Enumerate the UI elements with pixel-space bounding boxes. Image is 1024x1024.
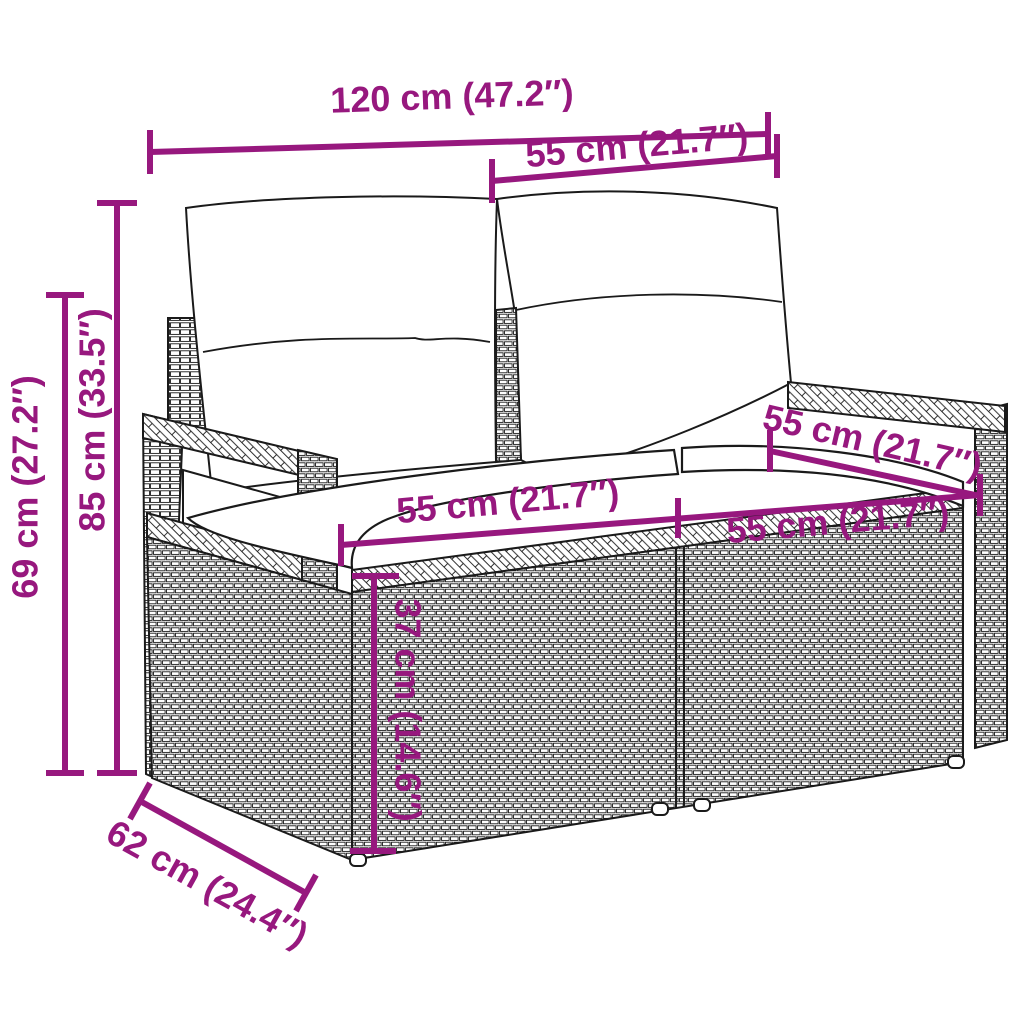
dim-section-width-top: 55 cm (21.7″) — [492, 115, 777, 203]
dim-label-back-height: 85 cm (33.5″) — [72, 308, 113, 531]
sofa-foot — [694, 799, 710, 811]
dimension-diagram-svg: 120 cm (47.2″) 55 cm (21.7″) 85 cm (33.5… — [0, 0, 1024, 1024]
sofa-foot — [948, 756, 964, 768]
dim-label-total-width: 120 cm (47.2″) — [330, 71, 575, 120]
sofa-foot — [350, 854, 366, 866]
sofa-left-side-face — [147, 537, 352, 860]
dim-back-height: 85 cm (33.5″) — [72, 203, 137, 773]
dim-label-seat-height: 37 cm (14.6″) — [387, 598, 428, 821]
dim-label-arm-height: 69 cm (27.2″) — [5, 375, 46, 598]
dim-tick — [296, 875, 316, 911]
dim-tick — [130, 783, 150, 819]
sofa-back-gap — [496, 308, 521, 462]
dimension-diagram: 120 cm (47.2″) 55 cm (21.7″) 85 cm (33.5… — [0, 0, 1024, 1024]
sofa-back-pillow-right — [497, 191, 791, 469]
sofa-foot — [652, 803, 668, 815]
